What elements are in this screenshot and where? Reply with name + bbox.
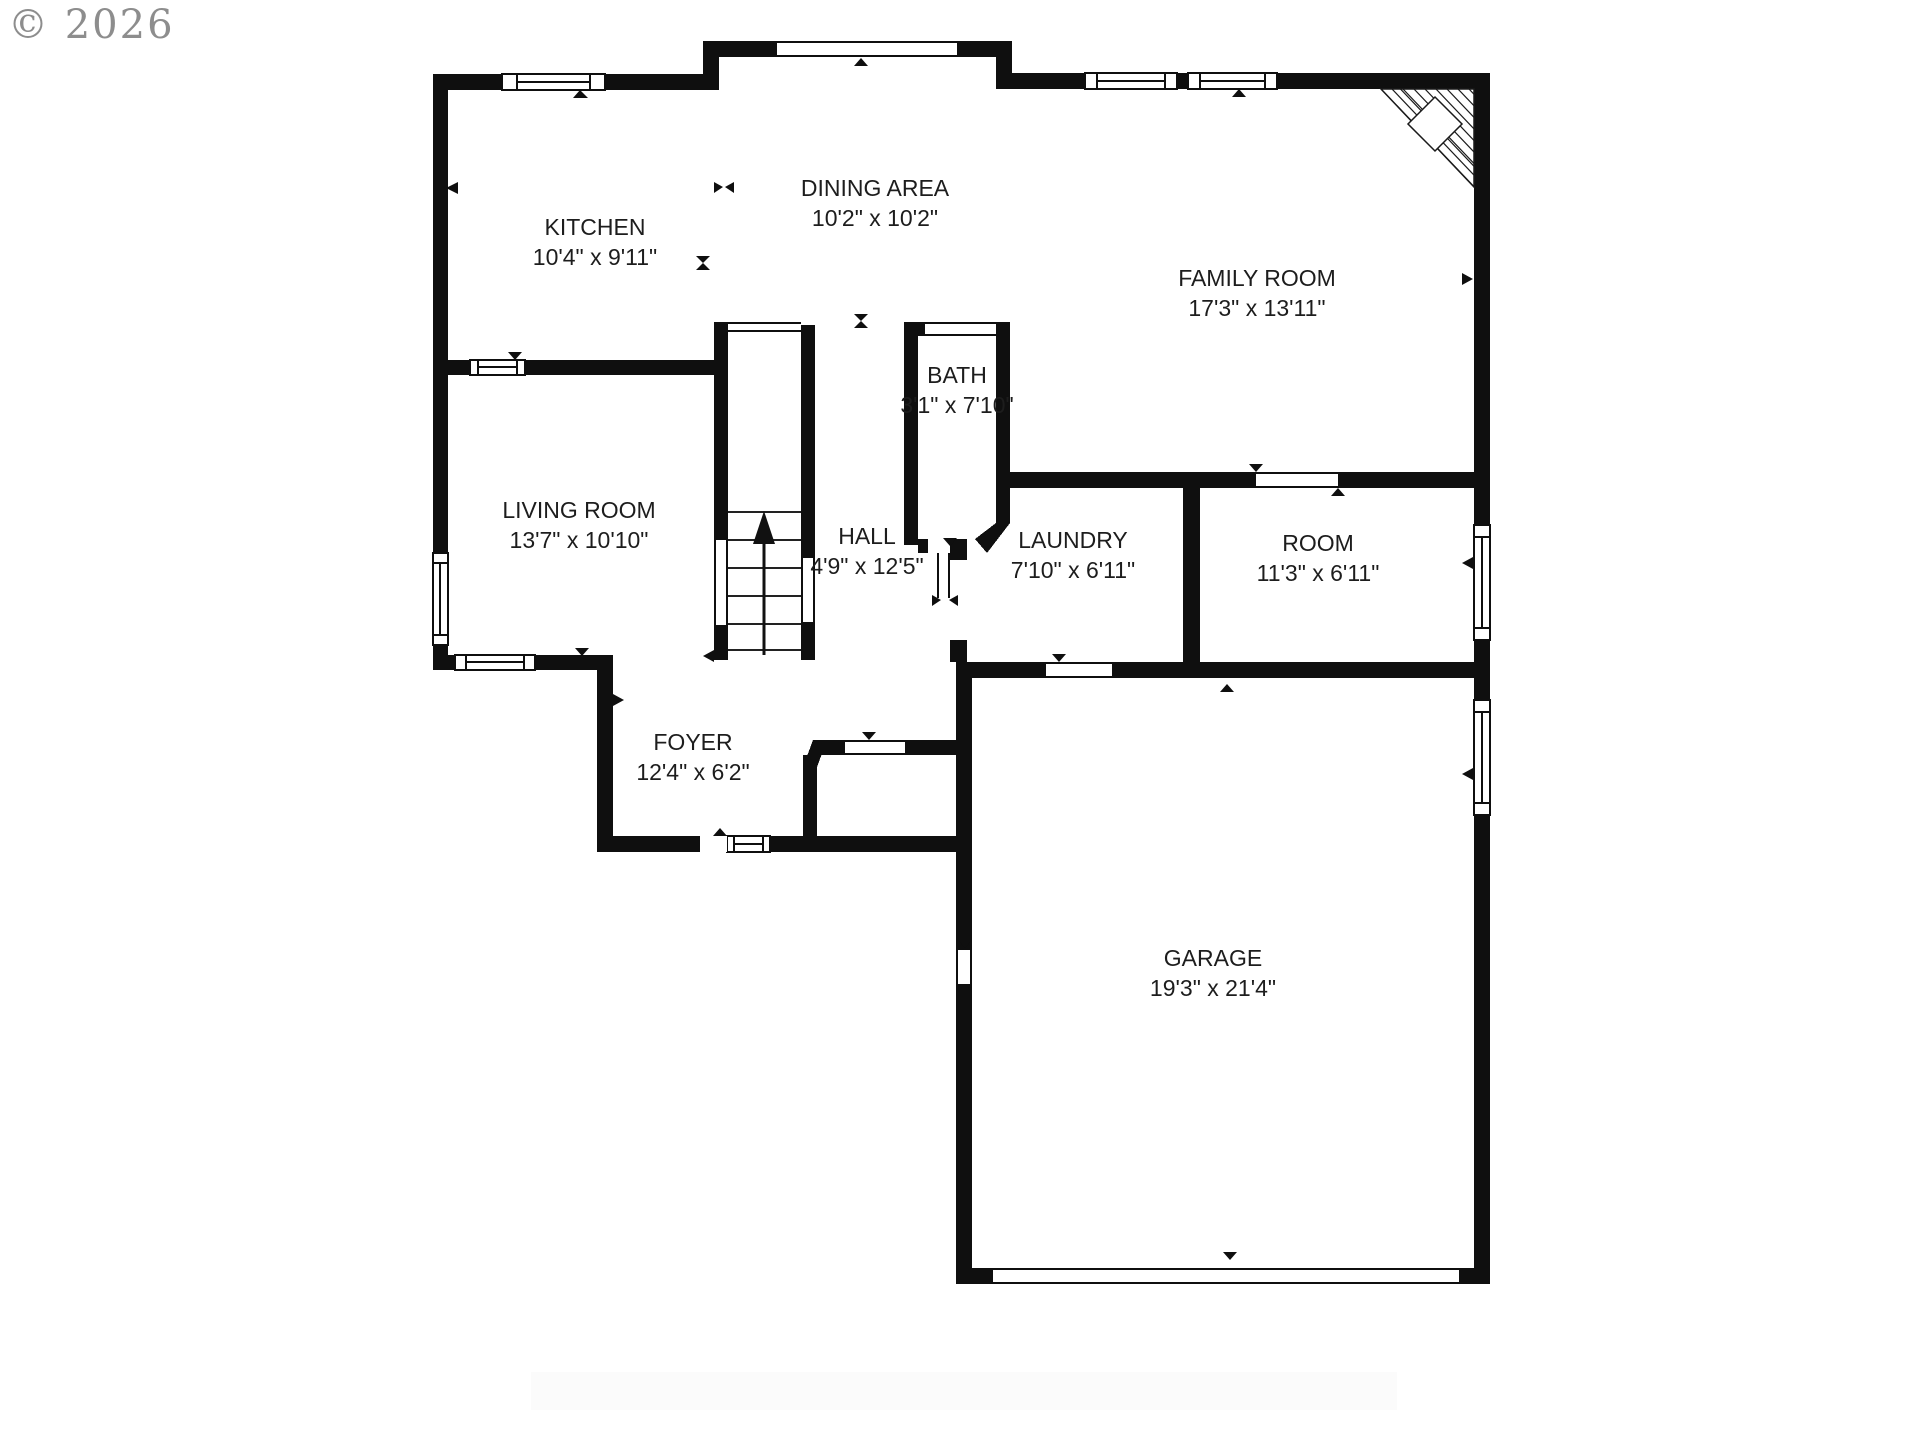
door-marker (1052, 654, 1066, 662)
door-marker (725, 182, 734, 193)
window (1474, 525, 1490, 640)
door-marker (1232, 89, 1246, 97)
room-name: HALL (810, 521, 923, 551)
door-marker (1462, 557, 1473, 569)
room-name: FAMILY ROOM (1178, 263, 1336, 293)
door-marker (713, 828, 727, 836)
door-marker (1220, 684, 1234, 692)
cased-opening (1256, 472, 1338, 488)
footer-watermark-bar (531, 1372, 1397, 1410)
room-dims: 4'9" x 12'5" (810, 551, 923, 581)
door-marker (1223, 1252, 1237, 1260)
room-label-family-room: FAMILY ROOM 17'3" x 13'11" (1178, 263, 1336, 323)
door-marker (575, 648, 589, 656)
room-name: LAUNDRY (1011, 525, 1135, 555)
door-marker (1331, 488, 1345, 496)
door-marker (854, 321, 868, 328)
window (433, 553, 448, 645)
room-dims: 12'4" x 6'2" (636, 757, 749, 787)
bath-door-leaf (937, 553, 950, 598)
door-marker (508, 352, 522, 360)
window (727, 836, 770, 852)
stair-railing (728, 322, 801, 332)
room-label-bath: BATH 3'1" x 7'10" (900, 360, 1013, 420)
room-label-laundry: LAUNDRY 7'10" x 6'11" (1011, 525, 1135, 585)
floor-plan-drawing (0, 0, 1920, 1440)
room-name: LIVING ROOM (502, 495, 655, 525)
room-name: FOYER (636, 727, 749, 757)
bath-chamfer-wall (975, 523, 1010, 553)
door-marker (613, 694, 624, 706)
room-label-dining-area: DINING AREA 10'2" x 10'2" (801, 173, 949, 233)
room-dims: 11'3" x 6'11" (1257, 558, 1380, 588)
room-dims: 7'10" x 6'11" (1011, 555, 1135, 585)
door-marker (1249, 464, 1263, 472)
door-marker (1462, 768, 1473, 780)
garage-side-door (956, 950, 972, 984)
room-dims: 10'4" x 9'11" (533, 242, 657, 272)
room-label-garage: GARAGE 19'3" x 21'4" (1150, 943, 1276, 1003)
door-marker (854, 314, 868, 321)
room-name: DINING AREA (801, 173, 949, 203)
room-name: GARAGE (1150, 943, 1276, 973)
door-marker (862, 732, 876, 740)
door-marker (1462, 273, 1473, 285)
window (502, 74, 605, 90)
sliding-door (777, 41, 957, 57)
entry-door-gap (700, 836, 727, 852)
room-name: KITCHEN (533, 212, 657, 242)
window (1474, 700, 1490, 815)
cased-opening (845, 740, 905, 755)
door-marker (854, 58, 868, 66)
stairs-up-arrow (753, 511, 775, 655)
garage-overhead-door (993, 1268, 1459, 1284)
window (1188, 73, 1277, 89)
door-marker (714, 182, 723, 193)
room-dims: 17'3" x 13'11" (1178, 293, 1336, 323)
door-marker (696, 256, 710, 263)
room-name: ROOM (1257, 528, 1380, 558)
room-dims: 13'7" x 10'10" (502, 525, 655, 555)
window (455, 655, 535, 670)
room-name: BATH (900, 360, 1013, 390)
door-marker (703, 650, 714, 662)
room-label-hall: HALL 4'9" x 12'5" (810, 521, 923, 581)
floor-plan: © 2026 (0, 0, 1920, 1440)
room-label-room: ROOM 11'3" x 6'11" (1257, 528, 1380, 588)
room-dims: 19'3" x 21'4" (1150, 973, 1276, 1003)
window (470, 360, 525, 375)
room-label-foyer: FOYER 12'4" x 6'2" (636, 727, 749, 787)
garage-entry-door (1046, 662, 1112, 678)
room-dims: 3'1" x 7'10" (900, 390, 1013, 420)
staircase (728, 511, 801, 655)
cased-opening (925, 322, 996, 336)
door-marker (573, 90, 588, 98)
room-dims: 10'2" x 10'2" (801, 203, 949, 233)
room-label-living-room: LIVING ROOM 13'7" x 10'10" (502, 495, 655, 555)
cased-opening (714, 540, 728, 625)
door-marker (696, 263, 710, 270)
window (1085, 73, 1177, 89)
room-label-kitchen: KITCHEN 10'4" x 9'11" (533, 212, 657, 272)
